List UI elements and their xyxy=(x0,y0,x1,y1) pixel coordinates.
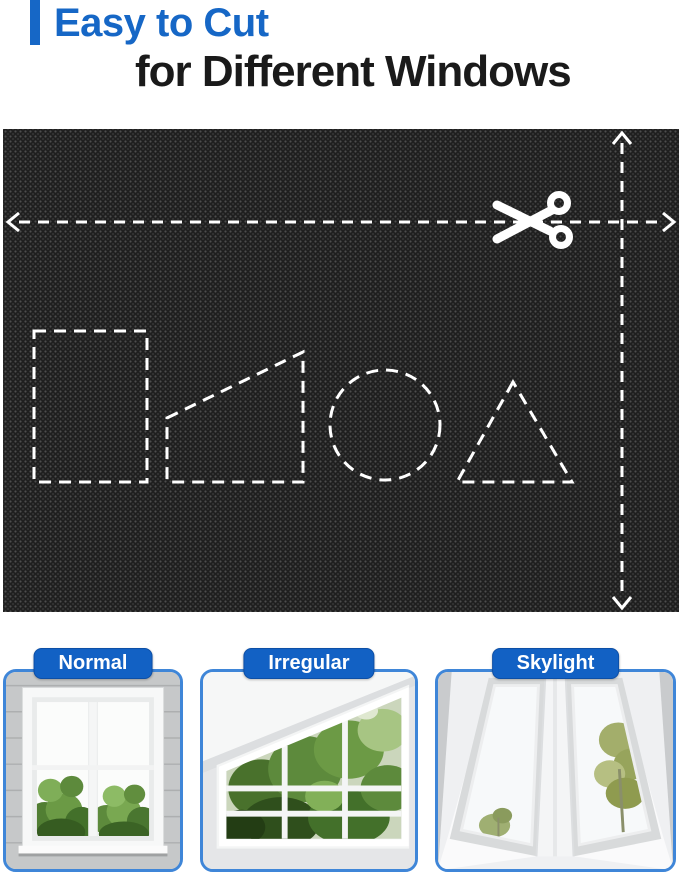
window-card-normal: Normal xyxy=(3,669,183,872)
cut-shape-circle xyxy=(330,370,440,480)
title-accent-bar xyxy=(30,0,40,45)
cut-shape-triangle xyxy=(457,382,572,482)
skylight-window-illustration xyxy=(438,672,673,869)
arrow-down-icon xyxy=(613,597,631,608)
irregular-window-illustration xyxy=(203,672,415,869)
window-photo-irregular xyxy=(200,669,418,872)
window-type-badge: Normal xyxy=(34,648,153,679)
height-cut-line xyxy=(613,133,631,608)
page-title-line2: for Different Windows xyxy=(135,46,571,98)
header: Easy to Cut for Different Windows xyxy=(0,0,679,129)
window-type-badge: Skylight xyxy=(492,648,620,679)
window-type-badge: Irregular xyxy=(243,648,374,679)
cut-shape-rectangle xyxy=(34,331,147,482)
window-photo-normal xyxy=(3,669,183,872)
product-infographic: Easy to Cut for Different Windows xyxy=(0,0,679,874)
fabric-swatch xyxy=(3,129,679,612)
scissors-icon xyxy=(497,195,570,246)
window-card-skylight: Skylight xyxy=(435,669,676,872)
cut-shape-trapezoid xyxy=(167,352,303,482)
page-title-line1: Easy to Cut xyxy=(54,0,269,46)
window-card-irregular: Irregular xyxy=(200,669,418,872)
arrow-up-icon xyxy=(613,133,631,144)
cut-guides-overlay xyxy=(3,129,679,612)
window-photo-skylight xyxy=(435,669,676,872)
normal-window-illustration xyxy=(6,672,180,869)
arrow-left-icon xyxy=(8,213,19,231)
width-cut-line xyxy=(8,213,674,231)
arrow-right-icon xyxy=(663,213,674,231)
